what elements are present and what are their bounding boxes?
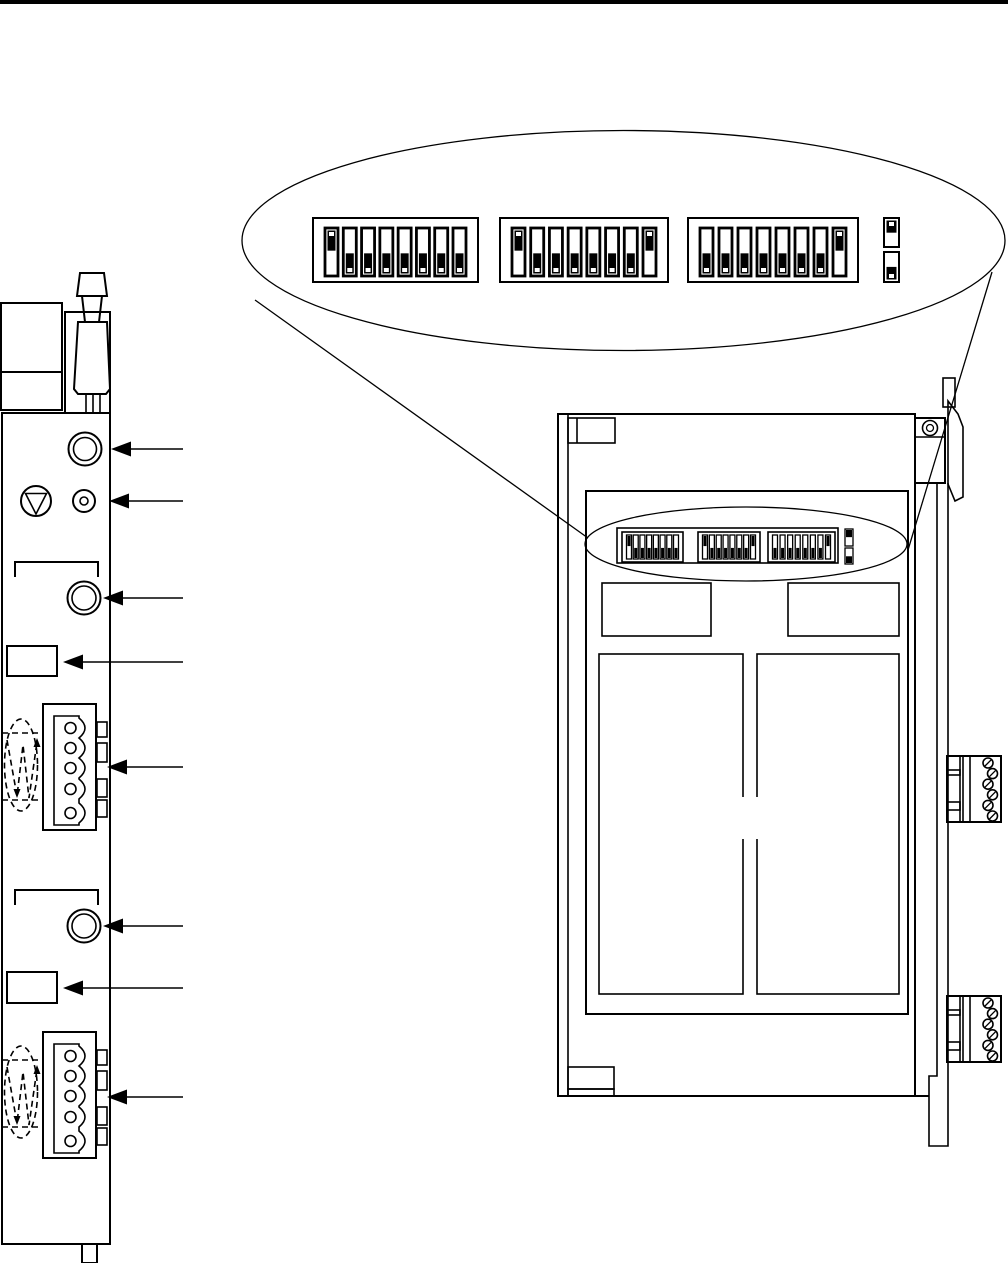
callout-arrow-upper-bnc-connector: [103, 591, 183, 606]
dip-switch-handle: [641, 548, 644, 558]
callout-arrow-upper-terminal-block: [107, 760, 183, 775]
twisted-pair-wires: [7, 1067, 37, 1125]
dip-switch-handle: [648, 548, 651, 558]
front-panel-view: [1, 273, 183, 1263]
terminal-hole: [65, 1091, 76, 1102]
dip-switch-handle: [752, 536, 755, 546]
terminal-hole: [65, 743, 76, 754]
latch-screw: [923, 421, 938, 436]
antenna-mount-block: [65, 312, 110, 413]
terminal-hole: [65, 784, 76, 795]
dip-switch-notch: [628, 268, 633, 272]
dip-switch-handle: [704, 536, 707, 546]
terminal-screw-slot: [985, 760, 991, 766]
top-housing-upper-block: [1, 303, 62, 372]
dip-switch-handle: [846, 556, 852, 563]
dip-switch-handle: [661, 548, 664, 558]
page-top-rule: [0, 0, 1008, 4]
dip-switch-handle: [789, 548, 792, 558]
dip-switch-notch: [591, 268, 596, 272]
twisted-pair-arrowhead: [14, 1116, 21, 1125]
lower-terminal-block: [43, 1032, 107, 1158]
terminal-screw-slot: [990, 771, 996, 777]
terminal-hole: [65, 1136, 76, 1147]
terminal-hole: [65, 1051, 76, 1062]
mounting-foot: [82, 1244, 97, 1263]
twisted-pair-wires: [7, 740, 37, 798]
lower-bracket: [15, 890, 98, 905]
dip-switch-notch: [516, 232, 521, 236]
terminal-screw-slot: [985, 1042, 991, 1048]
dip-switch-notch: [799, 268, 804, 272]
dip-switch-notch: [572, 268, 577, 272]
callout-arrowhead: [111, 442, 131, 457]
callout-leader-line-left: [255, 300, 588, 538]
diagram-canvas: [0, 0, 1008, 1263]
terminal-screw-slot: [990, 813, 996, 819]
terminal-side-tab: [97, 1050, 107, 1065]
dip-switch-handle: [819, 548, 822, 558]
terminal-side-tab: [97, 779, 107, 797]
dip-switch-notch: [704, 268, 709, 272]
terminal-hole: [65, 723, 76, 734]
terminal-side-tab: [97, 1128, 107, 1145]
twisted-pair-symbol: [2, 719, 41, 811]
front-panel-generated: [2, 442, 183, 1159]
callout-arrow-antenna-connector: [111, 442, 183, 457]
component-block-large-left: [599, 654, 743, 994]
dip-switch-notch: [818, 268, 823, 272]
antenna: [74, 273, 110, 413]
dip-switch-notch: [889, 274, 894, 278]
component-block-small-right: [788, 583, 899, 636]
upper-label: [7, 646, 57, 676]
dip-switch-handle: [724, 548, 727, 558]
dip-switch-notch: [457, 268, 462, 272]
lower-label: [7, 972, 57, 1003]
status-led: [73, 490, 95, 512]
zoom-callout: [242, 131, 1005, 551]
twisted-pair-symbol: [2, 1046, 41, 1138]
dip-switch-handle: [804, 548, 807, 558]
manual-page: [0, 0, 1008, 1263]
terminal-hole: [65, 763, 76, 774]
lower-bnc-inner: [72, 914, 96, 938]
terminal-screw-slot: [985, 1021, 991, 1027]
status-led-dot: [80, 497, 88, 505]
antenna-connector-inner: [74, 438, 97, 461]
dip-switch-handle: [654, 548, 657, 558]
terminal-screw-slot: [990, 792, 996, 798]
inverted-triangle-symbol: [21, 486, 51, 516]
dip-switch-notch: [610, 268, 615, 272]
terminal-side-tab: [97, 743, 107, 762]
dip-switch-notch: [329, 232, 334, 236]
dip-switch-notch: [366, 268, 371, 272]
side-terminal-band: [947, 770, 960, 775]
terminal-screw-slot: [985, 781, 991, 787]
dip-switch-notch: [535, 268, 540, 272]
bottom-left-notch: [568, 1067, 614, 1089]
mini-dip-switches: [622, 529, 853, 564]
dip-switch-handle: [774, 548, 777, 558]
dip-switch-handle: [710, 548, 713, 558]
din-latch: [915, 378, 963, 501]
terminal-screw-slot: [990, 1053, 996, 1059]
callout-arrowhead: [103, 919, 123, 934]
dip-switch-handle: [745, 548, 748, 558]
twisted-pair-arrowhead: [14, 789, 21, 798]
callout-arrow-lower-bnc-connector: [103, 919, 183, 934]
dip-switch-handle: [634, 548, 637, 558]
terminal-screw-slot: [985, 1000, 991, 1006]
dip-switch-notch: [384, 268, 389, 272]
inverted-triangle-glyph: [26, 494, 47, 515]
break-mark: [740, 797, 746, 839]
side-terminal-band: [947, 1010, 960, 1015]
antenna-cap: [77, 273, 107, 296]
dip-switch-handle: [796, 548, 799, 558]
antenna-body: [74, 322, 110, 394]
terminal-hole: [65, 808, 76, 819]
terminal-hole: [65, 1071, 76, 1082]
callout-arrowhead: [63, 981, 83, 996]
dip-switch-handle: [811, 548, 814, 558]
callout-leader-line-right: [908, 272, 992, 550]
terminal-screw-slot: [990, 1032, 996, 1038]
bottom-left-notch-strip: [568, 1089, 614, 1096]
dip-switch-notch: [837, 232, 842, 236]
dip-switch-handle: [668, 548, 671, 558]
dip-switch-notch: [742, 268, 747, 272]
terminal-screw-slot: [985, 802, 991, 808]
side-terminal-band: [947, 802, 960, 810]
terminal-block-face: [54, 716, 85, 825]
callout-arrowhead: [109, 494, 129, 509]
dip-switch-handle: [731, 548, 734, 558]
side-terminal-blocks: [947, 756, 1001, 1062]
latch-lever: [948, 401, 963, 501]
dip-switch-notch: [553, 268, 558, 272]
upper-terminal-block: [43, 704, 107, 830]
top-left-notch: [568, 418, 615, 443]
terminal-side-tab: [97, 1071, 107, 1090]
dip-switch-handle: [738, 548, 741, 558]
dip-switch-notch: [723, 268, 728, 272]
terminal-side-tab: [97, 800, 107, 817]
rear-mounting-bar: [929, 483, 948, 1146]
upper-bracket: [15, 562, 98, 577]
dip-switch-handle: [781, 548, 784, 558]
component-block-large-right: [757, 654, 899, 994]
dip-switch-notch: [439, 268, 444, 272]
module-side-view: [558, 378, 1001, 1146]
dip-switch-notch: [402, 268, 407, 272]
latch-screw-center: [927, 425, 934, 432]
terminal-screw-slot: [990, 1011, 996, 1017]
callout-arrow-lower-terminal-block: [107, 1090, 183, 1105]
callout-arrowhead: [63, 655, 83, 670]
side-terminal-block-2: [947, 996, 1001, 1062]
callout-arrow-status-led: [109, 494, 183, 509]
dip-switch-detail: [313, 218, 899, 282]
dip-switch-notch: [347, 268, 352, 272]
callout-arrowhead: [103, 591, 123, 606]
dip-switch-handle: [675, 548, 678, 558]
dip-switch-handle: [846, 530, 852, 537]
break-mark: [754, 797, 760, 839]
side-terminal-band: [947, 1042, 960, 1050]
dip-switch-handle: [827, 536, 830, 546]
upper-bnc-inner: [72, 586, 96, 610]
dip-switch-handle: [717, 548, 720, 558]
side-terminal-block-1: [947, 756, 1001, 822]
dip-switch-handle: [628, 536, 631, 546]
terminal-side-tab: [97, 722, 107, 737]
callout-arrow-upper-label: [63, 655, 183, 670]
component-block-small-left: [602, 583, 711, 636]
antenna-neck: [82, 296, 102, 322]
latch-block: [915, 418, 945, 483]
dip-switch-notch: [420, 268, 425, 272]
terminal-block-face: [54, 1044, 85, 1153]
terminal-side-tab: [97, 1107, 107, 1125]
callout-arrow-lower-label: [63, 981, 183, 996]
module-pcb: [586, 491, 908, 1014]
top-housing-lower-block: [1, 372, 62, 410]
dip-switch-notch: [780, 268, 785, 272]
dip-switch-notch: [647, 232, 652, 236]
dip-switch-notch: [761, 268, 766, 272]
dip-switch-notch: [889, 222, 894, 226]
terminal-hole: [65, 1112, 76, 1123]
